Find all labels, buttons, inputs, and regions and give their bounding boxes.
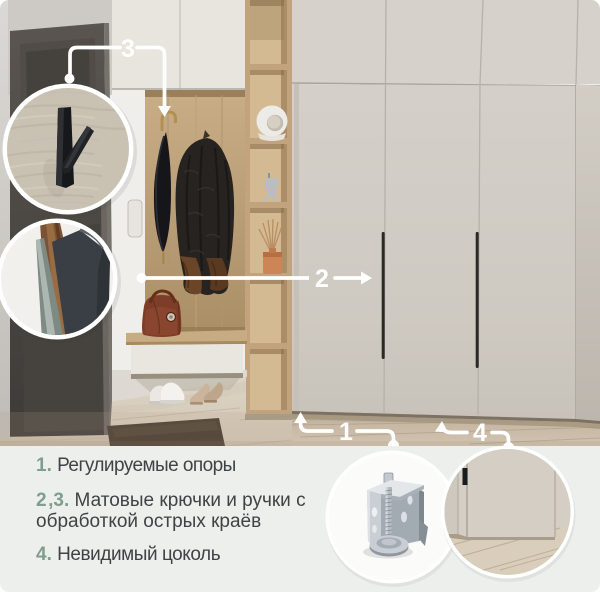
svg-text:2: 2 [315,265,329,293]
svg-text:1: 1 [339,418,353,446]
svg-text:4: 4 [473,419,487,447]
svg-text:3: 3 [121,35,135,63]
